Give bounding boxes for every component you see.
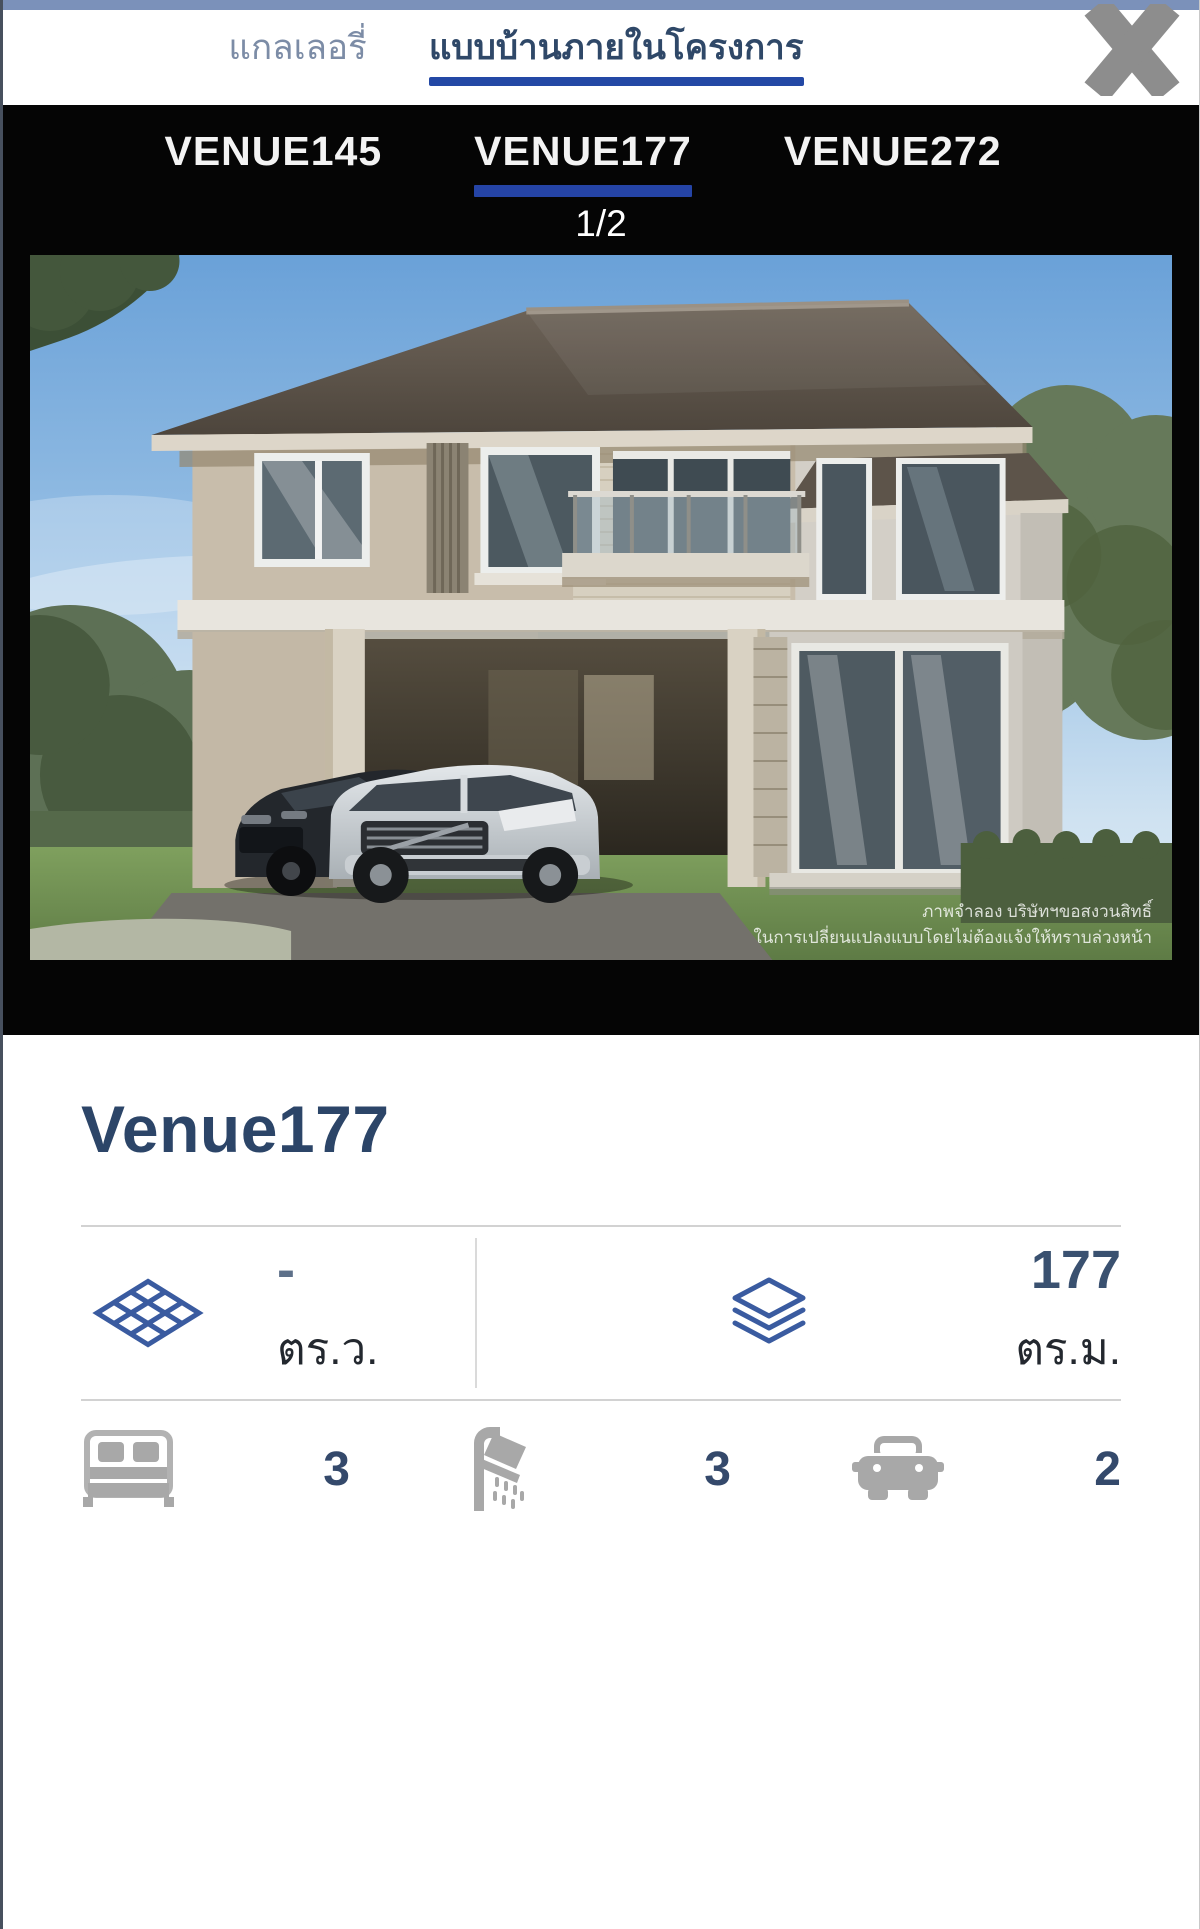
venue-tab-177[interactable]: VENUE177 <box>474 123 692 197</box>
venue-tab-bar: VENUE145 VENUE177 VENUE272 <box>3 105 1181 197</box>
usable-area-unit: ตร.ม. <box>809 1314 1121 1384</box>
carousel-section: VENUE145 VENUE177 VENUE272 1/2 <box>3 105 1199 1035</box>
bedrooms-count: 3 <box>323 1442 350 1497</box>
bathrooms-count: 3 <box>704 1442 731 1497</box>
parking-amenity: 2 <box>776 1436 1121 1502</box>
venue-tab-145[interactable]: VENUE145 <box>164 123 382 197</box>
image-pagination: 1/2 <box>3 203 1199 245</box>
bedrooms-amenity: 3 <box>81 1429 434 1509</box>
parking-count: 2 <box>1094 1442 1121 1497</box>
shower-icon <box>462 1425 544 1513</box>
close-button[interactable] <box>1077 4 1187 100</box>
amenities-row: 3 3 <box>81 1425 1121 1513</box>
usable-area-value: 177 <box>809 1242 1121 1299</box>
header: แกลเลอรี่ แบบบ้านภายในโครงการ <box>3 10 1199 105</box>
layers-icon <box>729 1276 809 1350</box>
tab-house-plans-label: แบบบ้านภายในโครงการ <box>429 26 804 70</box>
house-details-panel: Venue177 - ตร.ว. <box>3 1035 1199 1929</box>
tab-gallery-underline <box>228 77 366 86</box>
gallery-modal: แกลเลอรี่ แบบบ้านภายในโครงการ VENUE145 V… <box>0 0 1200 1929</box>
house-model-title: Venue177 <box>81 1035 1121 1169</box>
land-area-text: - ตร.ว. <box>277 1242 378 1385</box>
image-watermark-line1: ภาพจำลอง บริษัทฯขอสงวนสิทธิ์ <box>922 899 1154 921</box>
image-watermark-line2: ในการเปลี่ยนแปลงแบบโดยไม่ต้องแจ้งให้ทราบ… <box>754 925 1153 947</box>
tab-gallery[interactable]: แกลเลอรี่ <box>228 26 366 86</box>
car-icon <box>852 1436 944 1502</box>
close-x-icon <box>1080 4 1184 96</box>
venue-tab-272[interactable]: VENUE272 <box>784 123 1002 197</box>
header-tab-bar: แกลเลอรี่ แบบบ้านภายในโครงการ <box>3 10 1199 86</box>
land-area-unit: ตร.ว. <box>277 1314 378 1384</box>
area-stats-row: - ตร.ว. 177 ตร.ม. <box>81 1227 1121 1399</box>
tab-house-plans[interactable]: แบบบ้านภายในโครงการ <box>429 26 804 86</box>
venue-tab-145-underline <box>164 185 382 197</box>
floor-tiles-icon <box>83 1271 213 1355</box>
venue-tab-177-label: VENUE177 <box>474 123 692 179</box>
house-photo[interactable]: ภาพจำลอง บริษัทฯขอสงวนสิทธิ์ ในการเปลี่ย… <box>30 255 1172 960</box>
venue-tab-272-label: VENUE272 <box>784 123 1002 179</box>
venue-tab-145-label: VENUE145 <box>164 123 382 179</box>
venue-tab-272-underline <box>784 185 1002 197</box>
bathrooms-amenity: 3 <box>434 1425 776 1513</box>
usable-area-text: 177 ตร.ม. <box>809 1242 1121 1385</box>
top-accent-strip <box>3 0 1199 10</box>
tab-gallery-label: แกลเลอรี่ <box>228 26 366 70</box>
land-area-value: - <box>277 1242 378 1299</box>
venue-tab-177-underline <box>474 185 692 197</box>
land-area-stat: - ตร.ว. <box>81 1238 477 1388</box>
divider-bottom <box>81 1399 1121 1401</box>
house-rendering-image: ภาพจำลอง บริษัทฯขอสงวนสิทธิ์ ในการเปลี่ย… <box>30 255 1172 960</box>
tab-house-plans-underline <box>429 77 804 86</box>
usable-area-stat: 177 ตร.ม. <box>477 1238 1121 1388</box>
bed-icon <box>81 1429 176 1509</box>
